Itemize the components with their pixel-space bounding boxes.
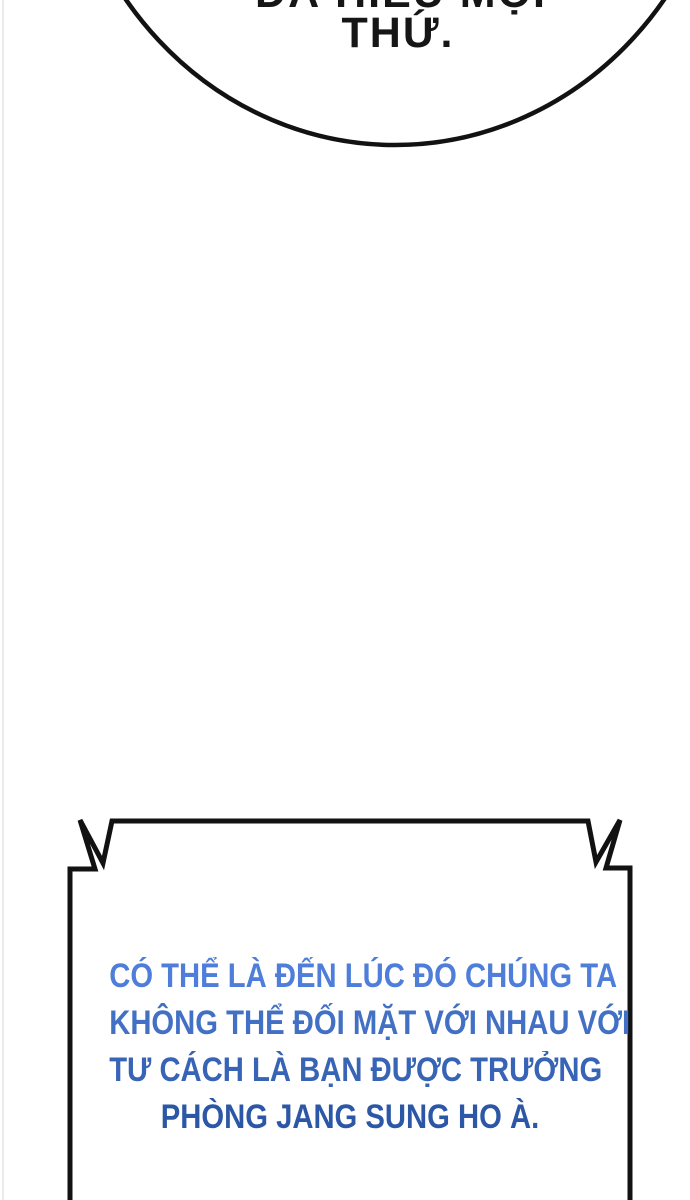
dialog-line: PHÒNG JANG SUNG HO À. [109,1094,591,1141]
dialog-line: TƯ CÁCH LÀ BẠN ĐƯỢC TRƯỞNG [109,1047,591,1094]
dialog-text-block: CÓ THỂ LÀ ĐẾN LÚC ĐÓ CHÚNG TA KHÔNG THỂ … [70,953,630,1141]
dialog-line: CÓ THỂ LÀ ĐẾN LÚC ĐÓ CHÚNG TA [109,953,591,1000]
comic-page: ĐÃ HIỂU MỌI THỨ. CÓ THỂ LÀ ĐẾN LÚC ĐÓ CH… [0,0,690,1200]
dialog-line: KHÔNG THỂ ĐỐI MẶT VỚI NHAU VỚI [109,1000,591,1047]
bubble-main-line: THỨ. [342,11,455,55]
